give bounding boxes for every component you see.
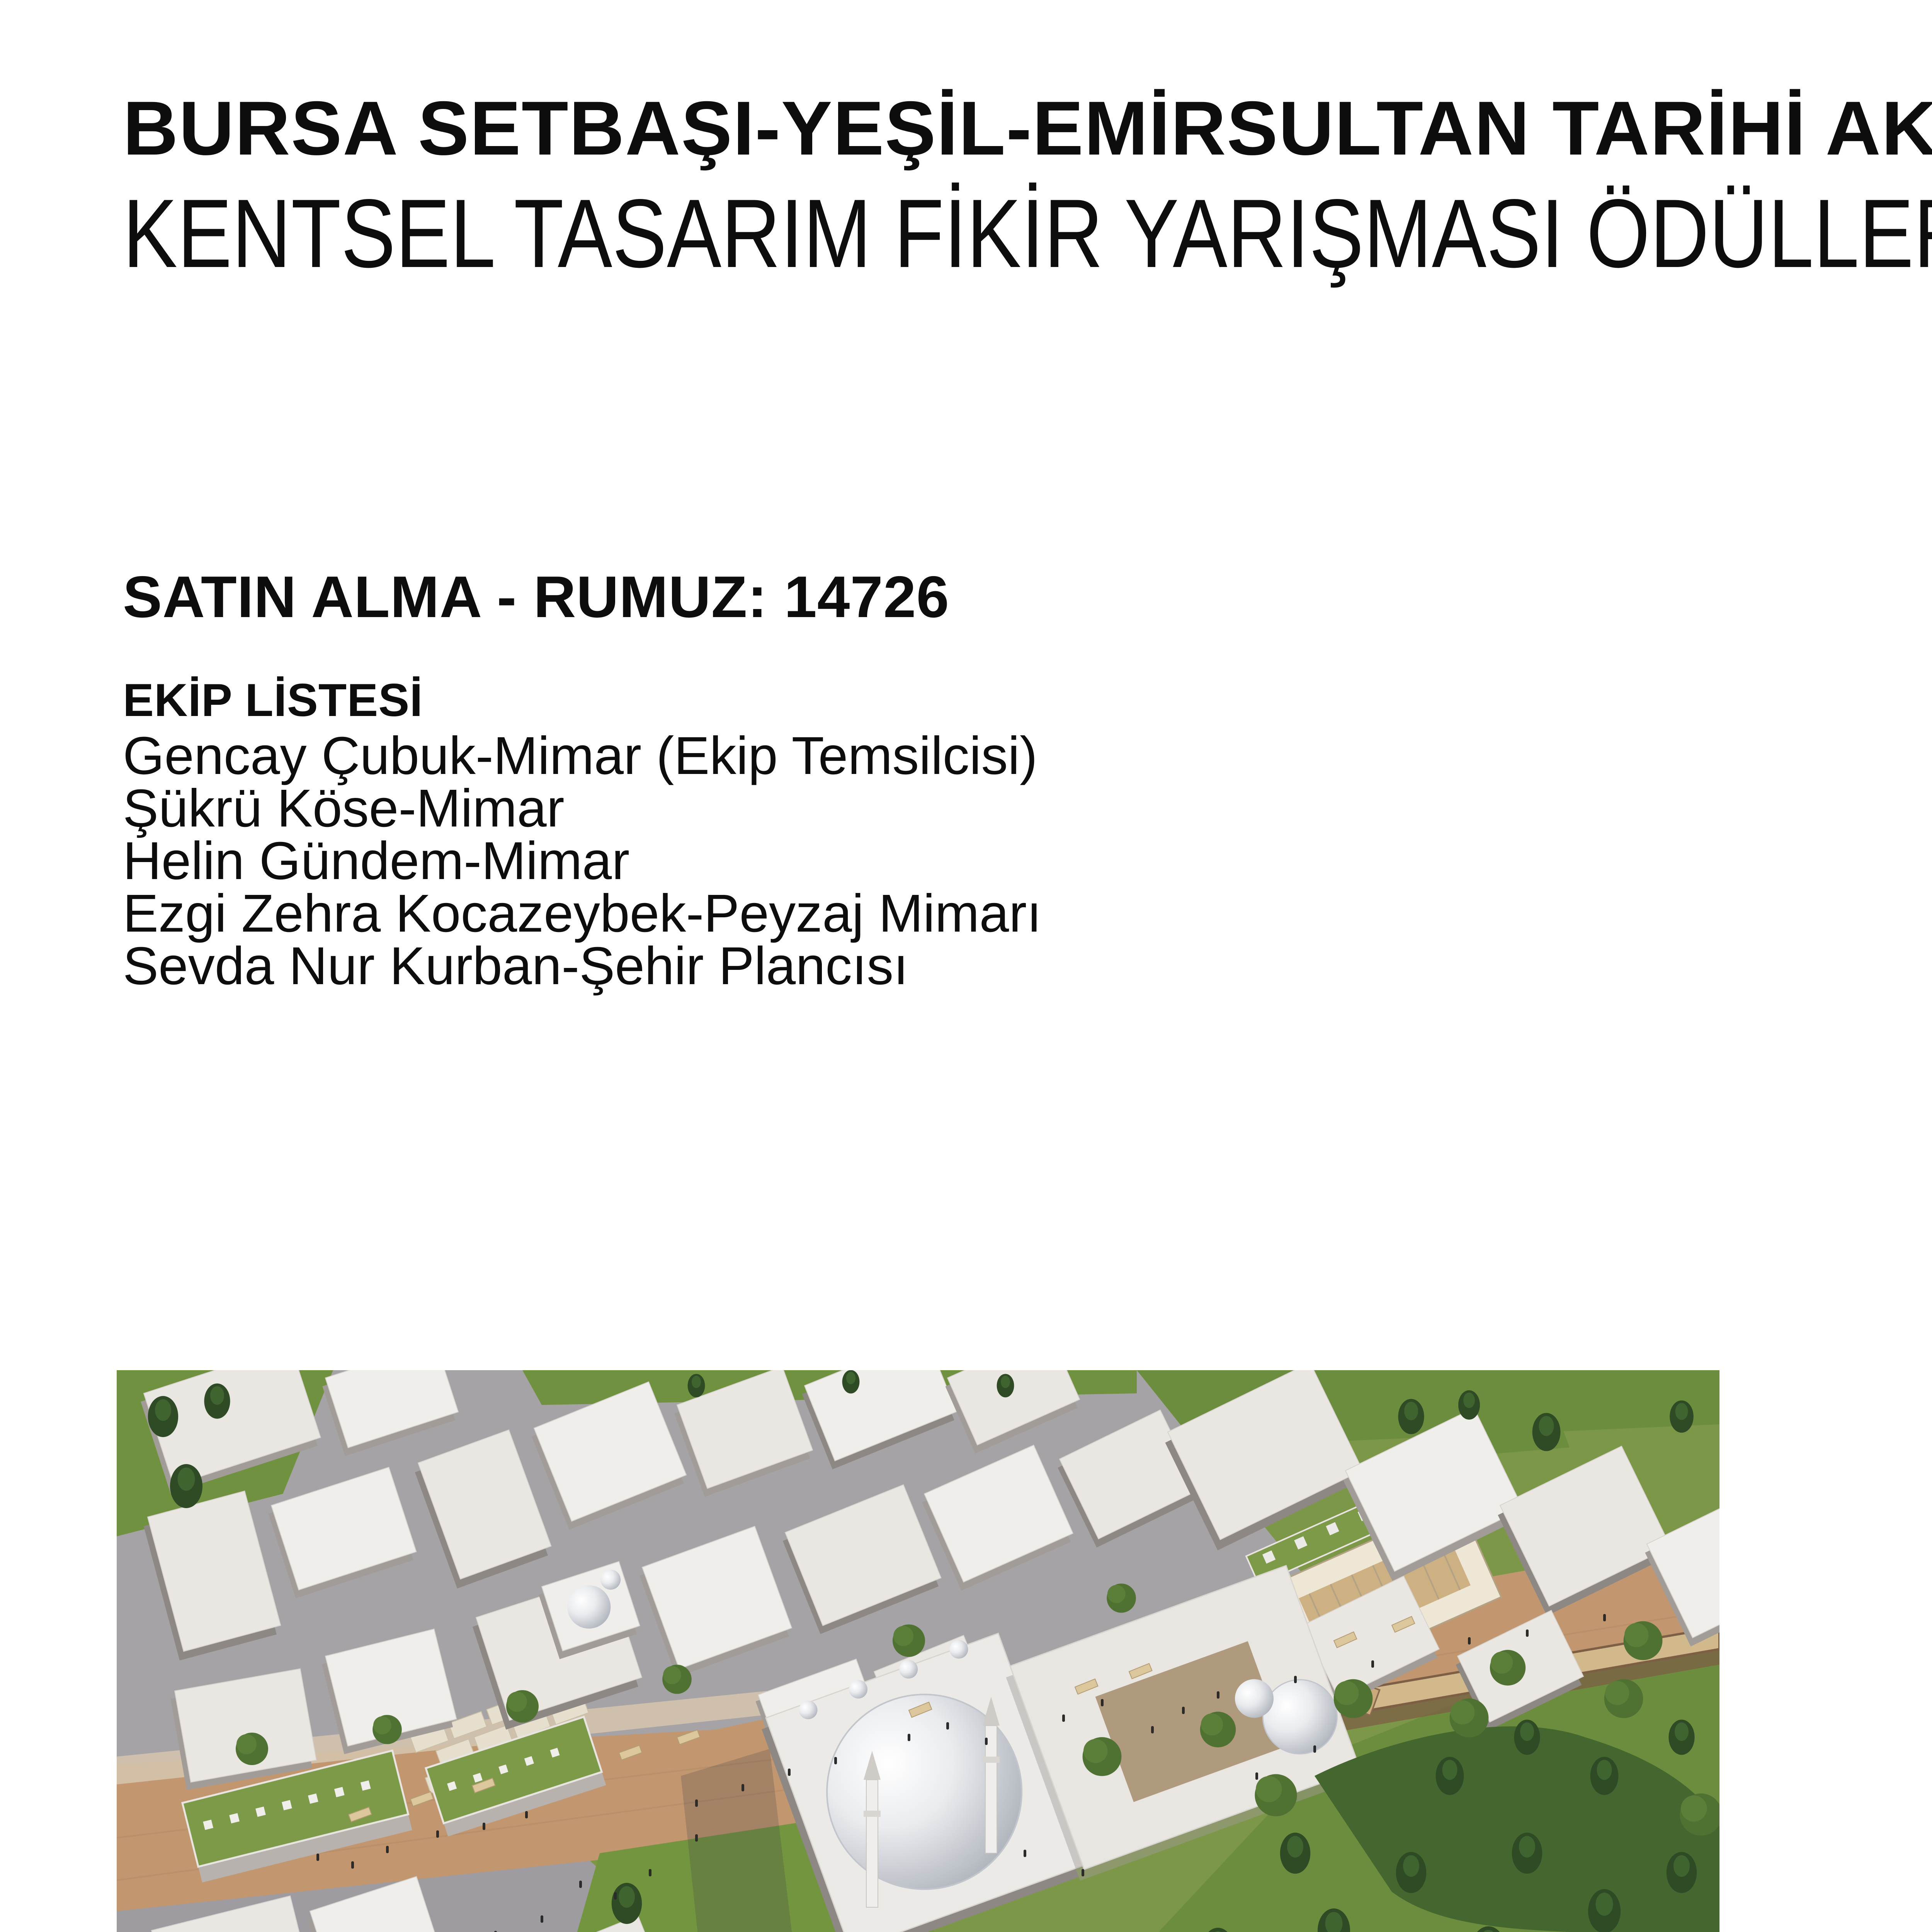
team-list: Gencay Çubuk-Mimar (Ekip Temsilcisi) Şük… (123, 730, 1042, 992)
poster-page: BURSA SETBAŞI-YEŞİL-EMİRSULTAN TARİHİ AK… (0, 0, 1932, 1932)
team-member: Sevda Nur Kurban-Şehir Plancısı (123, 940, 1042, 992)
aerial-render-scene (117, 1370, 1719, 1932)
aerial-render-image (117, 1370, 1719, 1932)
team-member: Şükrü Köse-Mimar (123, 782, 1042, 835)
page-subtitle: KENTSEL TASARIM FİKİR YARIŞMASI ÖDÜLLERİ (123, 185, 1932, 282)
award-rumuz-line: SATIN ALMA - RUMUZ: 14726 (123, 568, 949, 626)
team-list-header: EKİP LİSTESİ (123, 677, 423, 723)
page-title: BURSA SETBAŞI-YEŞİL-EMİRSULTAN TARİHİ AK… (123, 90, 1932, 167)
team-member: Helin Gündem-Mimar (123, 835, 1042, 887)
team-member: Ezgi Zehra Kocazeybek-Peyzaj Mimarı (123, 887, 1042, 940)
team-member: Gencay Çubuk-Mimar (Ekip Temsilcisi) (123, 730, 1042, 782)
